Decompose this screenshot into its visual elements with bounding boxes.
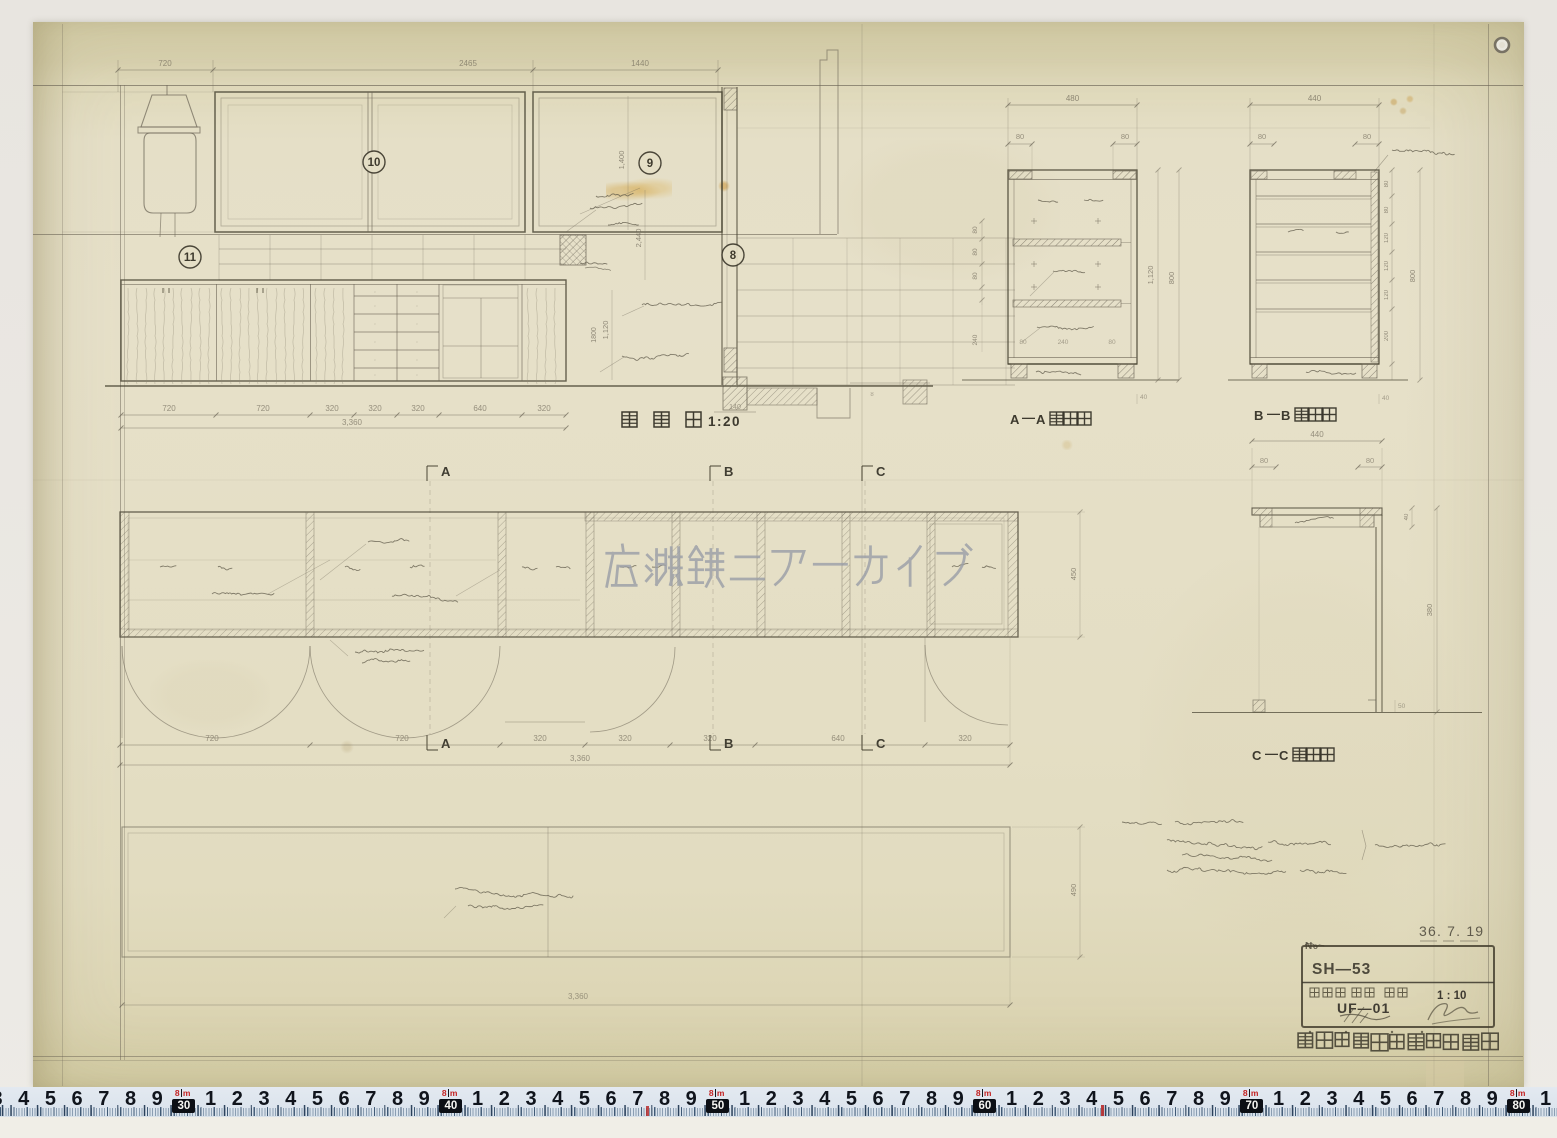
svg-text:720: 720 [205, 734, 219, 743]
svg-text:440: 440 [1308, 94, 1322, 103]
svg-text:80: 80 [1366, 456, 1374, 465]
svg-text:11: 11 [184, 252, 197, 264]
svg-text:36. 7. 19: 36. 7. 19 [1419, 923, 1484, 939]
svg-text:480: 480 [1066, 94, 1080, 103]
svg-text:80: 80 [1363, 132, 1371, 141]
svg-text:ᵕ: ᵕ [416, 290, 418, 296]
svg-text:ᵕ: ᵕ [416, 358, 418, 364]
svg-text:10: 10 [368, 157, 381, 169]
svg-text:320: 320 [958, 734, 972, 743]
svg-text:C: C [1279, 748, 1289, 763]
svg-text:800: 800 [1408, 270, 1417, 283]
svg-text:120: 120 [1384, 260, 1390, 271]
svg-text:320: 320 [618, 734, 632, 743]
svg-text:A: A [1010, 412, 1020, 427]
svg-text:1,120: 1,120 [1146, 266, 1155, 285]
svg-text:320: 320 [325, 404, 339, 413]
svg-text:720: 720 [395, 734, 409, 743]
svg-text:B: B [724, 736, 733, 751]
svg-text:ᵕ: ᵕ [374, 373, 376, 379]
svg-text:—: — [1022, 410, 1035, 425]
svg-text:380: 380 [1425, 604, 1434, 617]
svg-text:ᵕ: ᵕ [416, 322, 418, 328]
svg-text:320: 320 [411, 404, 425, 413]
svg-text:320: 320 [533, 734, 547, 743]
svg-text:320: 320 [368, 404, 382, 413]
svg-text:—: — [1265, 746, 1278, 761]
svg-text:2,440: 2,440 [634, 229, 643, 248]
svg-text:3,360: 3,360 [568, 992, 589, 1001]
svg-text:80: 80 [1384, 180, 1390, 187]
svg-text:1440: 1440 [631, 59, 649, 68]
svg-text:800: 800 [1167, 272, 1176, 285]
svg-text:3,360: 3,360 [570, 754, 591, 763]
svg-text:C: C [876, 736, 886, 751]
svg-text:720: 720 [162, 404, 176, 413]
svg-text:320: 320 [537, 404, 551, 413]
svg-text:720: 720 [158, 59, 172, 68]
svg-text:B: B [724, 464, 733, 479]
svg-text:SH—53: SH—53 [1312, 961, 1371, 978]
svg-text:C: C [876, 464, 886, 479]
svg-text:640: 640 [831, 734, 845, 743]
svg-text:40: 40 [1382, 395, 1390, 402]
svg-text:ᵕ: ᵕ [374, 322, 376, 328]
svg-text:ᵕ: ᵕ [416, 373, 418, 379]
svg-text:120: 120 [1384, 232, 1390, 243]
svg-text:1,400: 1,400 [617, 151, 626, 170]
svg-text:80: 80 [1016, 132, 1024, 141]
svg-text:450: 450 [1069, 568, 1078, 581]
svg-text:440: 440 [1310, 430, 1324, 439]
svg-text:ᵕ: ᵕ [416, 340, 418, 346]
svg-text:—: — [1267, 406, 1280, 421]
svg-text:320: 320 [703, 734, 717, 743]
svg-text:B: B [1254, 408, 1263, 423]
svg-text:ᵕ: ᵕ [374, 358, 376, 364]
svg-text:3,360: 3,360 [342, 418, 363, 427]
svg-text:80: 80 [1019, 339, 1027, 346]
svg-text:1 : 10: 1 : 10 [1437, 990, 1466, 1002]
svg-text:2465: 2465 [459, 59, 477, 68]
svg-text:A: A [1036, 412, 1046, 427]
svg-text:50: 50 [1398, 703, 1406, 710]
svg-text:80: 80 [1384, 206, 1390, 213]
svg-text:80: 80 [972, 248, 979, 256]
svg-text:8: 8 [870, 392, 874, 398]
svg-text:8: 8 [730, 250, 737, 262]
svg-text:240: 240 [1058, 339, 1069, 346]
svg-text:80: 80 [1258, 132, 1266, 141]
svg-text:1800: 1800 [591, 327, 598, 343]
svg-text:B: B [1281, 408, 1290, 423]
svg-text:A: A [441, 736, 451, 751]
svg-text:C: C [1252, 748, 1262, 763]
svg-text:640: 640 [473, 404, 487, 413]
svg-text:ᵕ: ᵕ [374, 304, 376, 310]
svg-text:80: 80 [1260, 456, 1268, 465]
svg-text:200: 200 [1384, 330, 1390, 341]
svg-text:9: 9 [647, 158, 653, 170]
svg-text:ᵕ: ᵕ [416, 304, 418, 310]
svg-text:40: 40 [1404, 513, 1410, 520]
svg-text:1,120: 1,120 [601, 321, 610, 340]
svg-text:ᵕ: ᵕ [374, 340, 376, 346]
svg-text:80: 80 [1108, 339, 1116, 346]
svg-text:80: 80 [972, 226, 979, 234]
svg-text:240: 240 [972, 334, 979, 345]
svg-text:40: 40 [1140, 394, 1148, 401]
svg-text:1:20: 1:20 [708, 414, 741, 429]
svg-text:A: A [441, 464, 451, 479]
svg-text:ᵕ: ᵕ [374, 290, 376, 296]
svg-text:80: 80 [972, 272, 979, 280]
svg-text:120: 120 [1384, 289, 1390, 300]
svg-text:80: 80 [1121, 132, 1129, 141]
svg-text:140: 140 [729, 404, 741, 411]
svg-text:490: 490 [1069, 884, 1078, 897]
svg-text:720: 720 [256, 404, 270, 413]
